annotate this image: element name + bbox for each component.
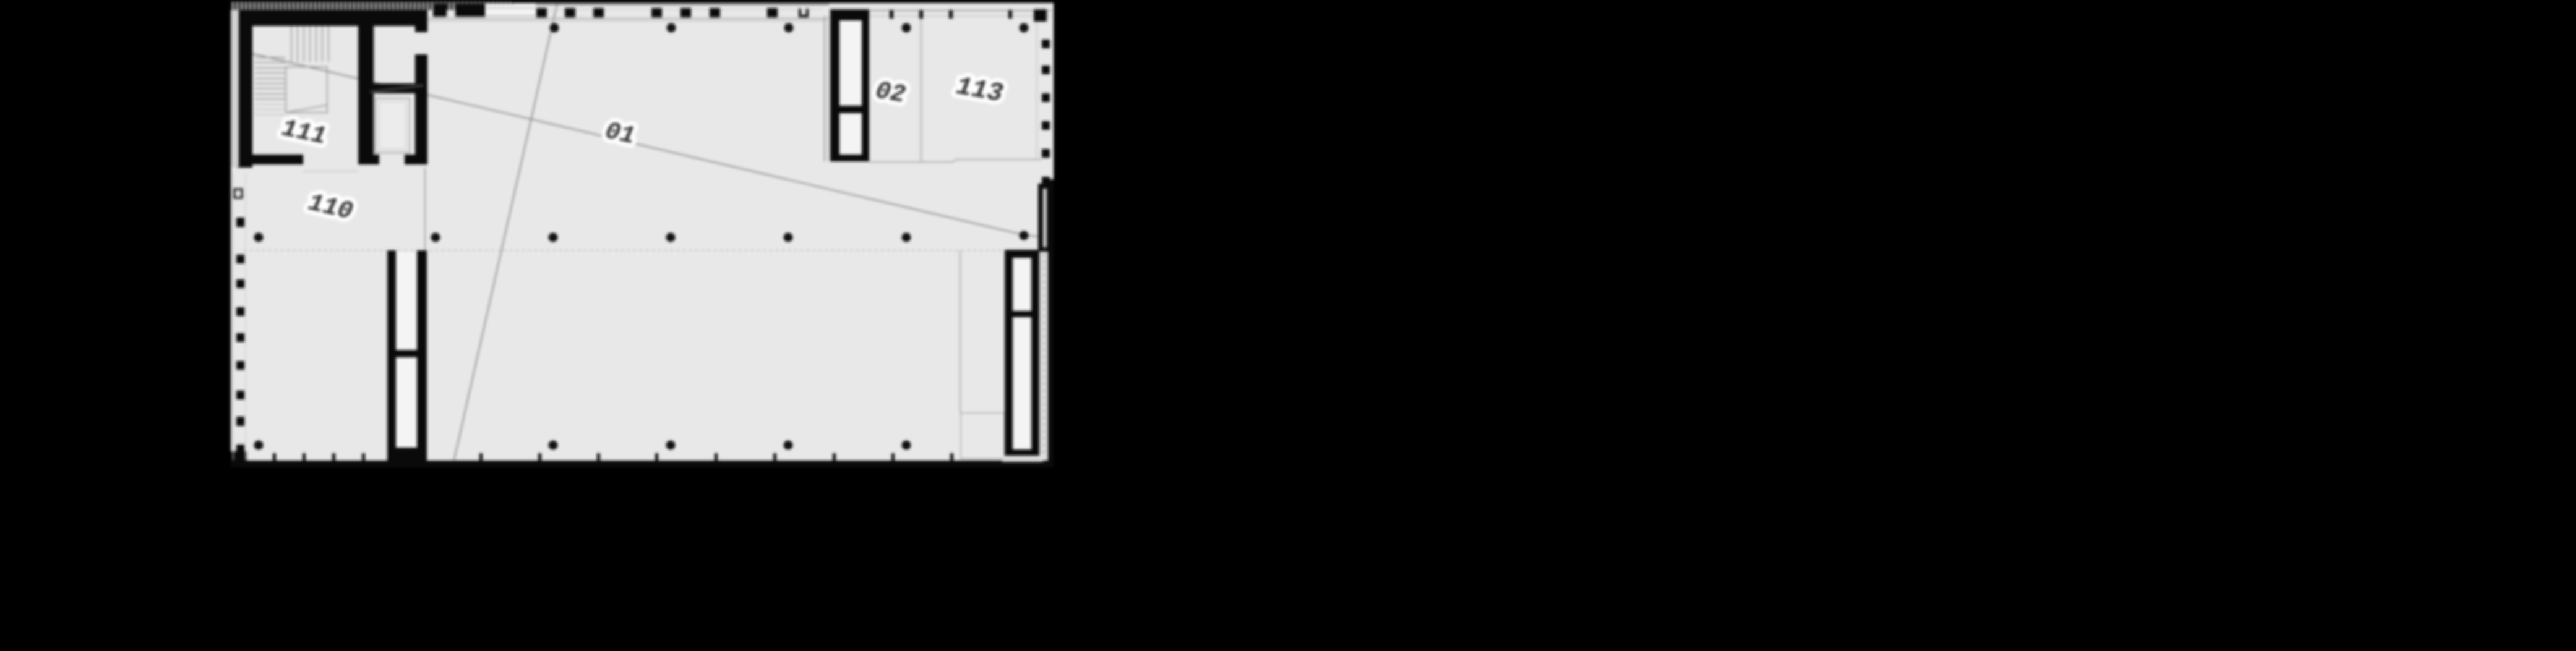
svg-text:02: 02 [874,77,908,110]
